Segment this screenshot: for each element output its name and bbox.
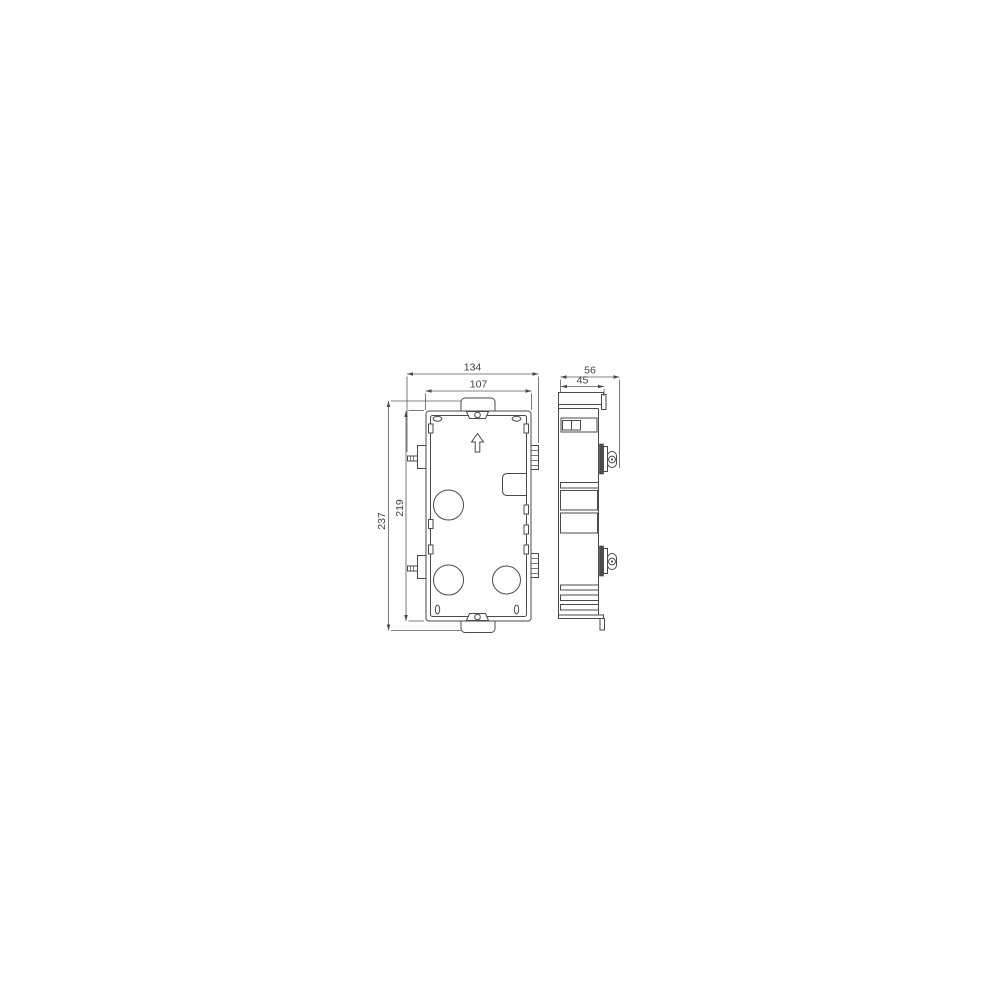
left-screw-tab-top bbox=[408, 446, 427, 469]
side-bottom-foot bbox=[600, 619, 605, 631]
dim-label-107: 107 bbox=[470, 379, 488, 391]
side-top-lip bbox=[602, 395, 607, 410]
side-bottom-flange bbox=[559, 615, 604, 619]
mounting-clip-top bbox=[600, 444, 617, 474]
side-slot-block bbox=[561, 418, 597, 432]
right-ribbed-block-bottom bbox=[531, 554, 539, 578]
side-body-ribs bbox=[561, 483, 599, 611]
right-ribbed-block-top bbox=[531, 446, 539, 470]
left-screw-tab-bottom bbox=[408, 556, 427, 579]
top-screw-boss bbox=[467, 412, 489, 419]
side-top-flange bbox=[559, 393, 604, 405]
front-view bbox=[408, 398, 539, 633]
mounting-clip-bottom bbox=[600, 546, 617, 576]
technical-drawing: 134 107 237 219 bbox=[0, 0, 1000, 1000]
screw-icon bbox=[408, 566, 418, 571]
right-wall-notch bbox=[503, 474, 527, 496]
side-view bbox=[559, 393, 617, 631]
dim-label-237: 237 bbox=[376, 512, 388, 530]
dim-label-219: 219 bbox=[394, 499, 406, 517]
screw-icon bbox=[408, 456, 418, 461]
dim-label-134: 134 bbox=[464, 362, 482, 374]
drawing-canvas: 134 107 237 219 bbox=[0, 0, 1000, 1000]
bottom-screw-boss bbox=[467, 614, 489, 621]
dim-label-45: 45 bbox=[577, 375, 589, 387]
dimension-inner-height: 219 bbox=[394, 411, 424, 622]
